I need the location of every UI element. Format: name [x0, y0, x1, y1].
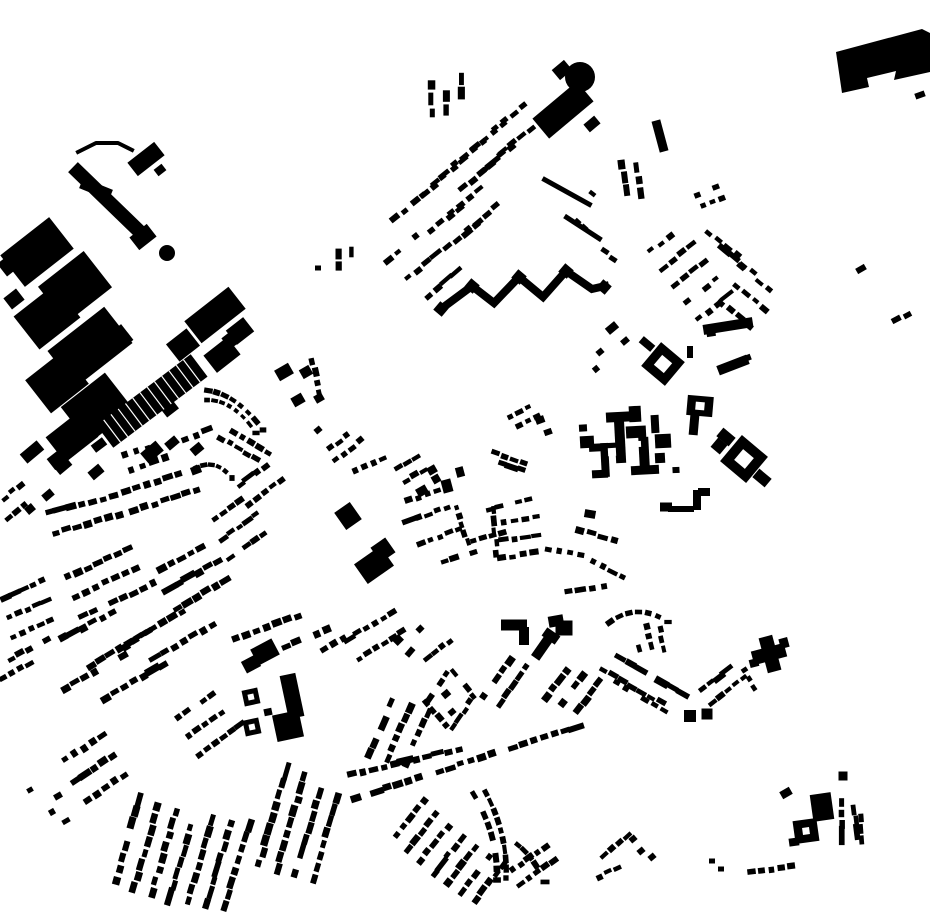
map-canvas [0, 0, 930, 924]
building-footprint-map [0, 0, 930, 924]
